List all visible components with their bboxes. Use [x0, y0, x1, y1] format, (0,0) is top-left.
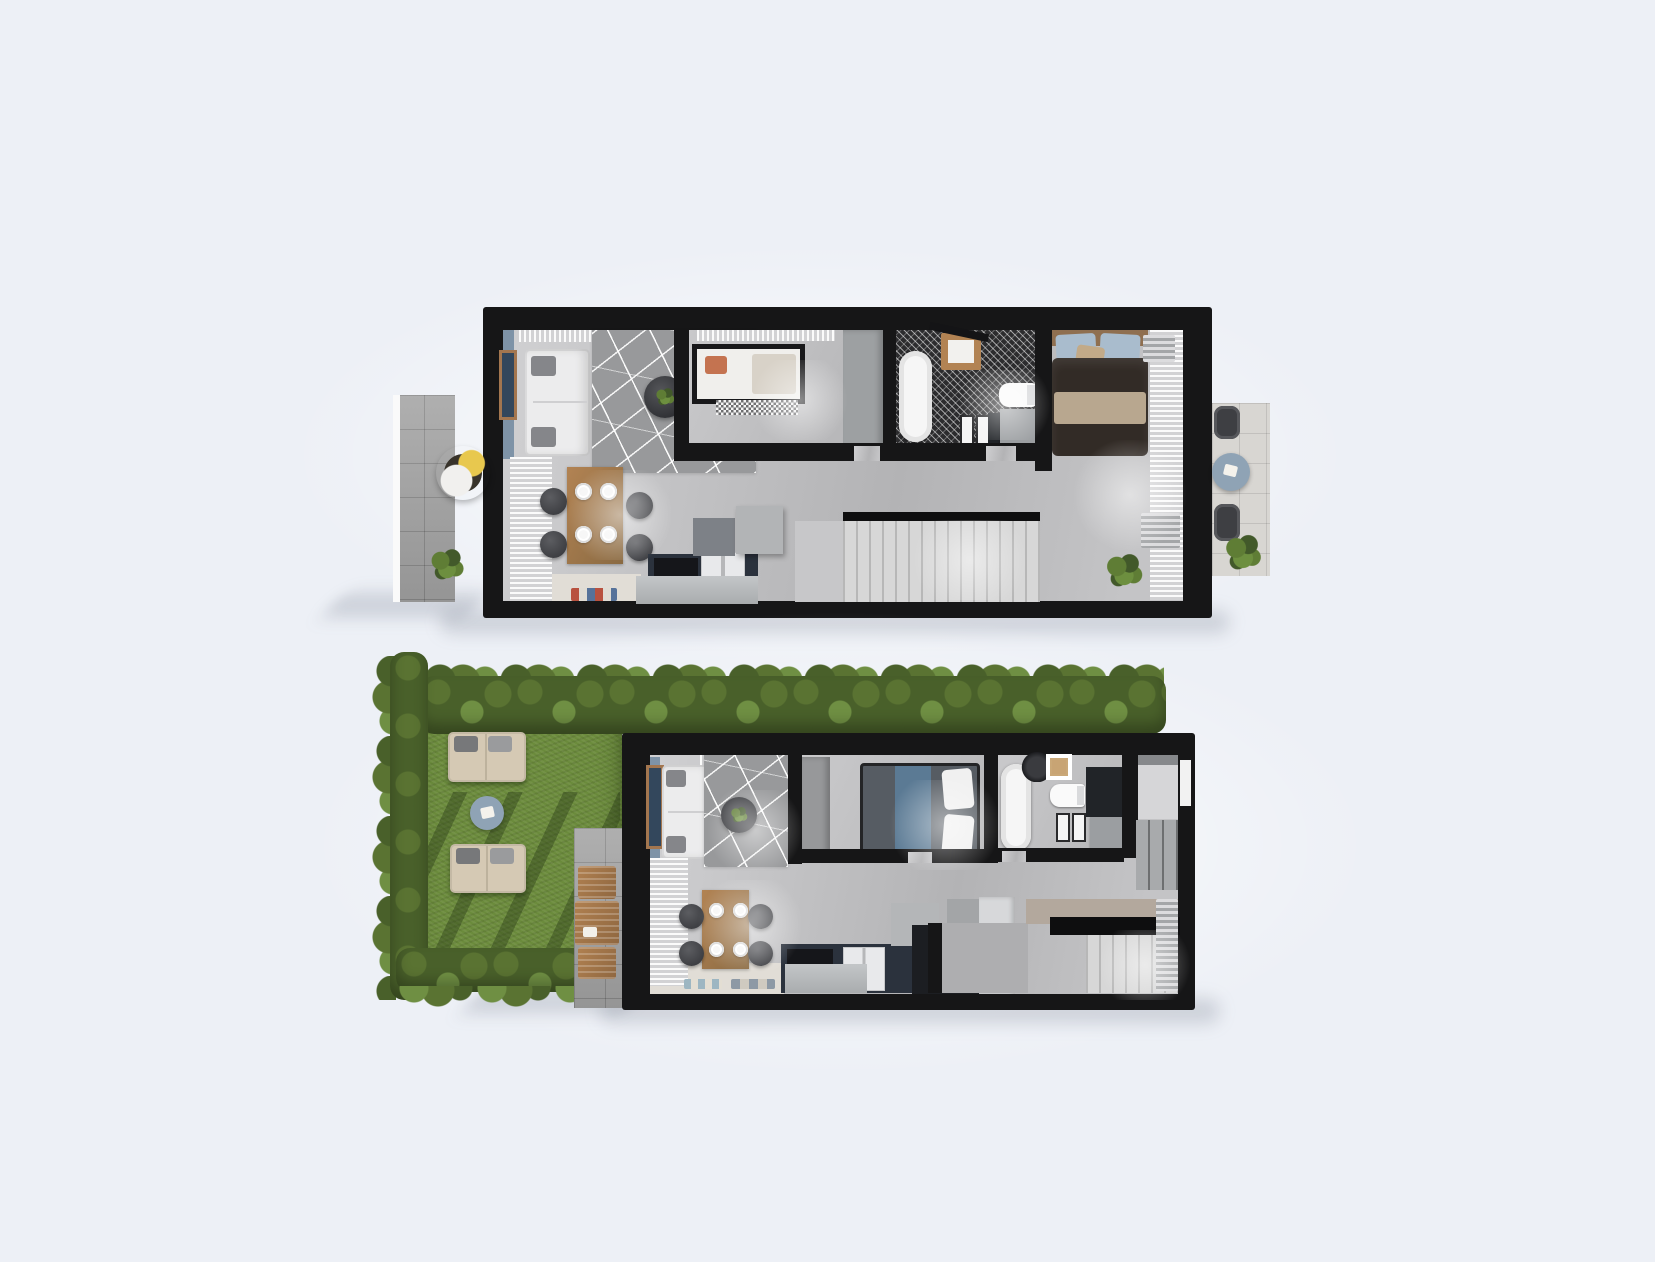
hall-wardrobe	[1136, 820, 1178, 890]
sofa-pillow	[666, 836, 686, 853]
lounger-seam	[486, 846, 488, 891]
lounger-pillow	[456, 848, 480, 864]
vanity-dark	[1086, 767, 1122, 817]
balcony-edge	[393, 395, 400, 602]
shower-towel	[948, 340, 974, 363]
window	[1180, 760, 1191, 806]
light-pool	[950, 370, 1060, 440]
bed-throw	[1054, 392, 1146, 424]
storage-box	[736, 506, 783, 554]
table-item	[480, 806, 495, 819]
ground-floor-plan	[0, 640, 1655, 1262]
lounger-pillow	[454, 736, 478, 752]
upper-floor-plan	[0, 0, 1655, 640]
bathtub	[899, 351, 932, 442]
wicker-chair	[1214, 406, 1240, 439]
garden-lounger	[450, 844, 526, 893]
kids-pillow	[705, 356, 727, 374]
pillow-blue	[1099, 333, 1140, 361]
door-opening	[986, 446, 1016, 461]
hedge-bottom-bumps	[398, 986, 596, 1012]
doormat	[731, 979, 775, 989]
balcony-plant-icon	[1224, 532, 1262, 574]
storage-box	[693, 518, 735, 556]
patio-table	[575, 901, 619, 945]
patio-chair	[578, 866, 616, 899]
sofa	[525, 349, 590, 456]
utility-shelf	[1138, 755, 1178, 765]
toilet-tank	[1077, 786, 1084, 805]
bistro-table	[1212, 453, 1250, 491]
hedge-top	[420, 676, 1166, 734]
patio	[574, 828, 622, 1008]
toilet	[1050, 784, 1085, 807]
light-pool	[745, 360, 855, 440]
doormat	[684, 979, 722, 989]
patio-chair	[578, 947, 616, 979]
potted-plant-icon	[429, 547, 465, 583]
framed-panel	[1072, 813, 1086, 842]
light-pool	[690, 880, 810, 970]
sofa-seam	[533, 401, 587, 403]
framed-panel	[1056, 813, 1070, 842]
sofa-pillow	[531, 356, 556, 376]
sofa-pillow	[666, 770, 686, 787]
floor-plans-canvas	[0, 0, 1655, 1262]
light-pool	[560, 470, 680, 560]
stair-landing	[795, 521, 843, 602]
doormat	[571, 588, 617, 601]
balcony-left	[393, 395, 455, 602]
bedroom-plant-icon	[1104, 552, 1144, 590]
partition-wall	[674, 330, 689, 458]
lounger-pillow	[488, 736, 512, 752]
kitchen-island	[636, 576, 758, 604]
wall-art	[499, 350, 517, 420]
garden-lounger	[448, 732, 526, 782]
wood-frame	[1046, 754, 1072, 780]
door-opening	[854, 446, 880, 461]
light-pool	[700, 790, 810, 870]
light-pool	[1070, 440, 1190, 550]
window-curtain-top	[697, 330, 835, 341]
balcony-right	[1212, 403, 1270, 576]
garden-side-table	[470, 796, 504, 830]
hanging-egg-chair	[436, 446, 490, 500]
lounger-seam	[485, 734, 487, 780]
table-plant-icon	[655, 387, 675, 407]
light-pool	[880, 780, 1010, 870]
light-pool	[1090, 930, 1200, 1000]
radiator	[1143, 335, 1175, 362]
light-pool	[900, 520, 1040, 600]
stair-wall	[928, 923, 942, 993]
balcony-door-blinds	[510, 457, 552, 601]
lounger-pillow	[490, 848, 514, 864]
table-item	[1223, 464, 1238, 478]
partition-wall	[883, 307, 896, 460]
sofa-pillow	[531, 427, 556, 447]
understair-block	[928, 923, 1028, 993]
table-item	[583, 927, 597, 937]
